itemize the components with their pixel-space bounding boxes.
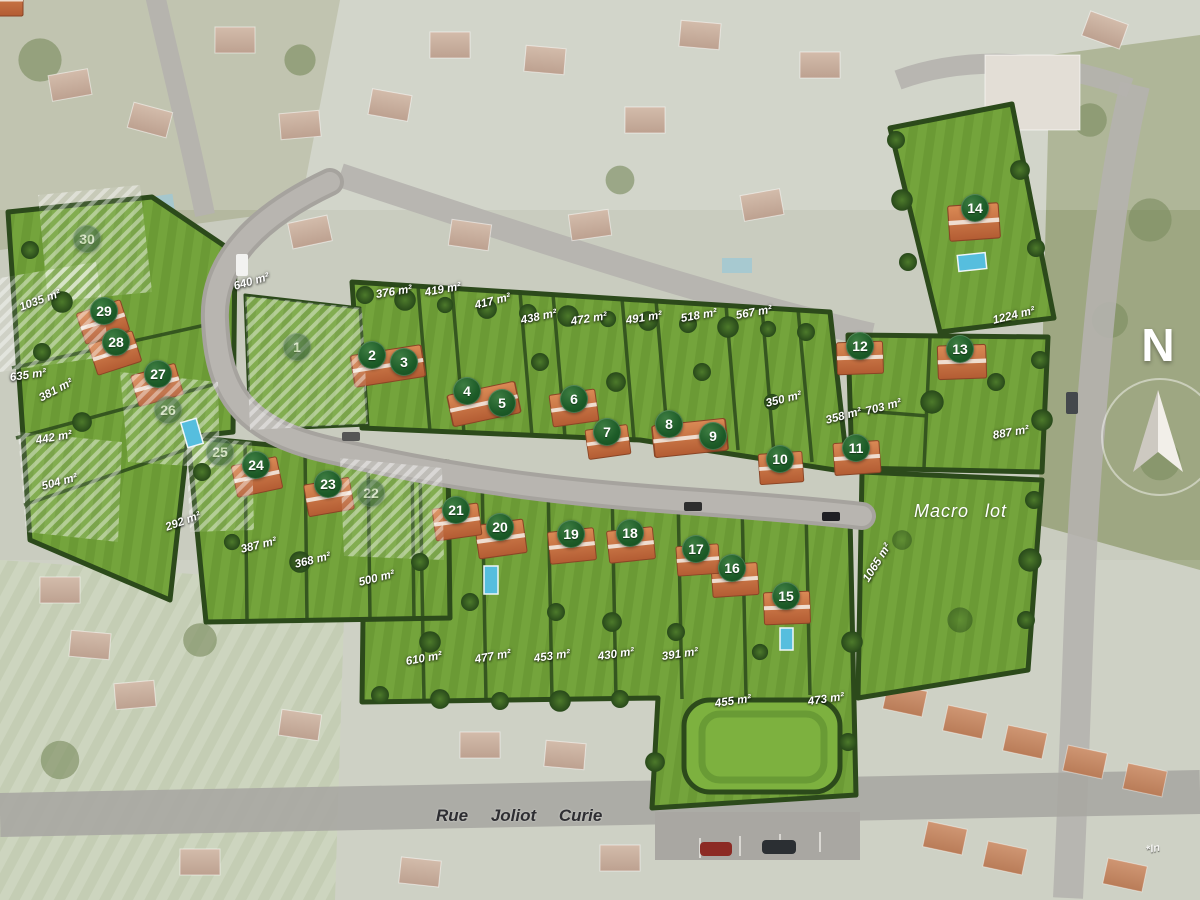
lot-number: 7 bbox=[603, 424, 611, 440]
lot-marker: 10 bbox=[766, 445, 794, 473]
lot-number: 19 bbox=[563, 526, 579, 542]
lot-marker: 14 bbox=[961, 194, 989, 222]
lot-marker: 29 bbox=[90, 297, 118, 325]
lot-marker: 12 bbox=[846, 332, 874, 360]
lot-number: 30 bbox=[79, 231, 95, 247]
lot-marker: 2 bbox=[358, 341, 386, 369]
lot-number: 20 bbox=[492, 519, 508, 535]
lot-marker: 11 bbox=[842, 434, 870, 462]
lot-number: 8 bbox=[665, 416, 673, 432]
macro-lot-label: Macro lot bbox=[914, 501, 1007, 522]
compass: N bbox=[1098, 322, 1200, 368]
lot-marker: 21 bbox=[442, 496, 470, 524]
lot-number: 17 bbox=[688, 541, 704, 557]
lot-number: 27 bbox=[150, 366, 166, 382]
lot-marker: 3 bbox=[390, 348, 418, 376]
lot-number: 23 bbox=[320, 476, 336, 492]
lot-number: 22 bbox=[363, 485, 379, 501]
lot-marker: 25 bbox=[206, 438, 234, 466]
lot-number: 28 bbox=[108, 334, 124, 350]
lot-marker: 6 bbox=[560, 385, 588, 413]
lot-marker: 27 bbox=[144, 360, 172, 388]
lot-marker: 23 bbox=[314, 470, 342, 498]
lot-marker: 19 bbox=[557, 520, 585, 548]
street-name-label: Rue Joliot Curie bbox=[436, 806, 602, 826]
lot-marker: 26 bbox=[154, 396, 182, 424]
lot-number: 2 bbox=[368, 347, 376, 363]
lot-number: 3 bbox=[400, 354, 408, 370]
lot-marker: 20 bbox=[486, 513, 514, 541]
compass-north-label: N bbox=[1098, 322, 1200, 368]
lot-marker: 9 bbox=[699, 422, 727, 450]
lot-number: 26 bbox=[160, 402, 176, 418]
lot-marker: 15 bbox=[772, 582, 800, 610]
lot-marker: 18 bbox=[616, 519, 644, 547]
lot-marker: 28 bbox=[102, 328, 130, 356]
lot-number: 11 bbox=[849, 440, 864, 456]
lot-number: 4 bbox=[463, 383, 471, 399]
site-plan-illustration bbox=[0, 0, 1200, 900]
lot-number: 18 bbox=[622, 525, 638, 541]
north-arrow-icon bbox=[1123, 386, 1193, 478]
masterplan-aerial-view: 1234567891011121314151617181920212223242… bbox=[0, 0, 1200, 900]
lot-number: 5 bbox=[498, 395, 506, 411]
lot-marker: 17 bbox=[682, 535, 710, 563]
lot-marker: 24 bbox=[242, 451, 270, 479]
lot-number: 24 bbox=[248, 457, 264, 473]
lot-number: 29 bbox=[96, 303, 112, 319]
lot-number: 14 bbox=[967, 200, 983, 216]
entrance-green bbox=[684, 700, 840, 792]
lot-marker: 22 bbox=[357, 479, 385, 507]
lot-number: 1 bbox=[293, 339, 301, 355]
lot-number: 6 bbox=[570, 391, 578, 407]
lot-marker: 13 bbox=[946, 335, 974, 363]
lot-marker: 16 bbox=[718, 554, 746, 582]
lot-number: 16 bbox=[724, 560, 740, 576]
lot-number: 25 bbox=[212, 444, 228, 460]
lot-number: 10 bbox=[772, 451, 788, 467]
lot-marker: 1 bbox=[283, 333, 311, 361]
lot-marker: 8 bbox=[655, 410, 683, 438]
lot-number: 12 bbox=[852, 338, 868, 354]
lot-marker: 30 bbox=[73, 225, 101, 253]
lot-number: 13 bbox=[952, 341, 968, 357]
lot-number: 9 bbox=[709, 428, 717, 444]
lot-marker: 5 bbox=[488, 389, 516, 417]
lot-number: 15 bbox=[778, 588, 794, 604]
lot-marker: 7 bbox=[593, 418, 621, 446]
lot-number: 21 bbox=[448, 502, 464, 518]
lot-marker: 4 bbox=[453, 377, 481, 405]
